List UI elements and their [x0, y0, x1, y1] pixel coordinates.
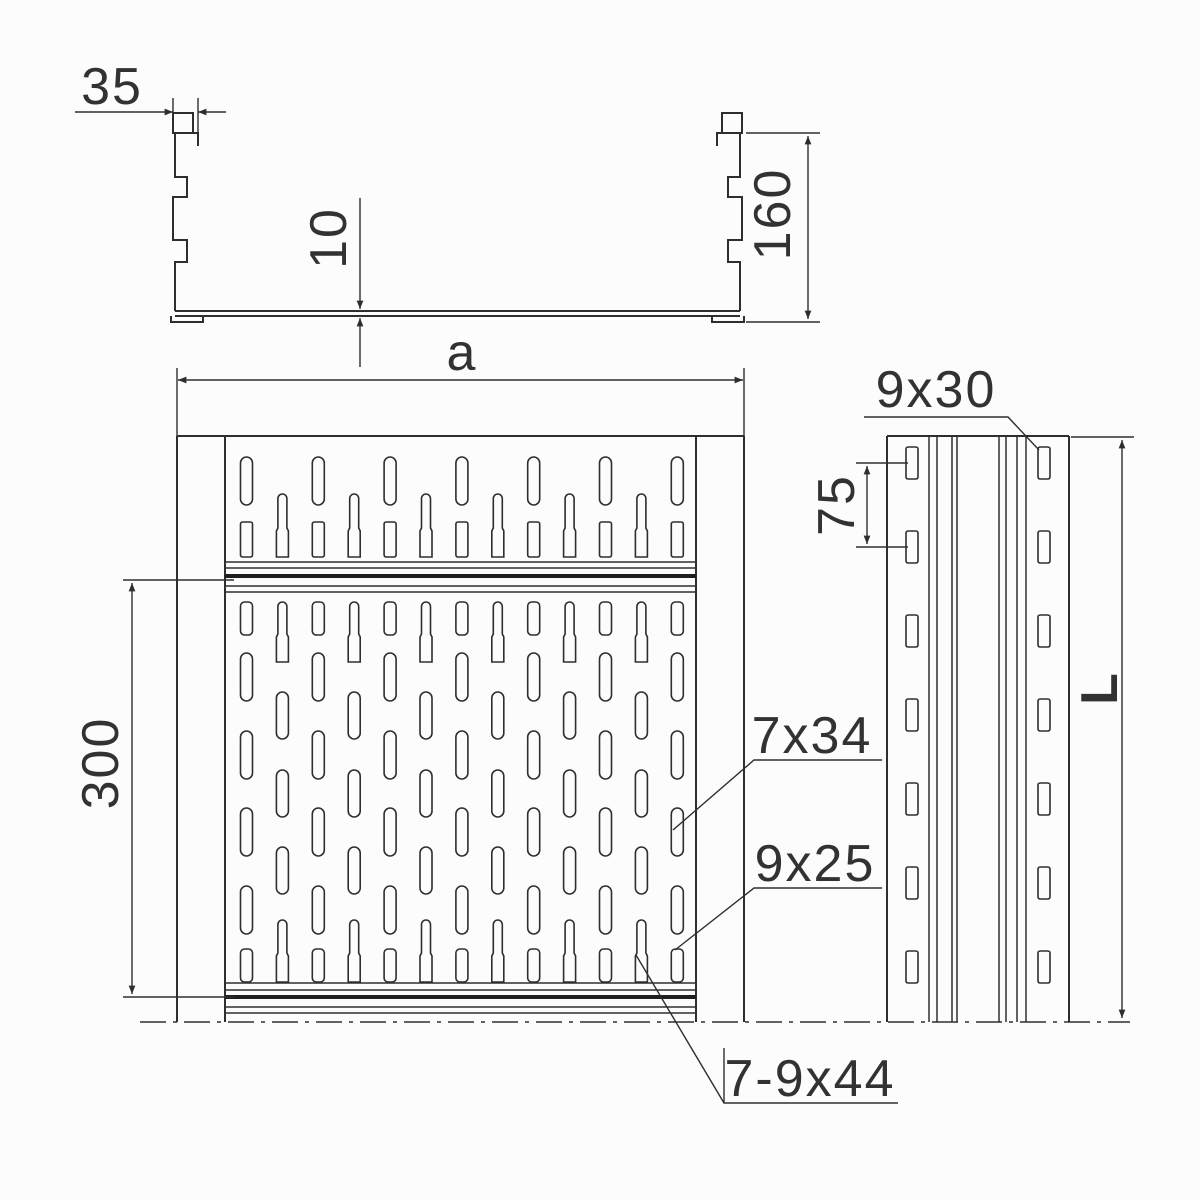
label-7x34: 7x34 — [752, 707, 873, 765]
side-view: 75 L 9x30 — [808, 361, 1134, 1022]
right-rim — [722, 113, 742, 133]
dim-300-label: 300 — [72, 717, 130, 810]
cable-tray-drawing: 35 10 160 — [0, 0, 1200, 1200]
right-rim-hook — [717, 133, 722, 146]
left-wall — [173, 133, 187, 311]
dim-160-label: 160 — [744, 168, 802, 261]
dim-a-label: a — [447, 324, 478, 382]
left-rim-hook — [193, 133, 198, 146]
side-profile-lines — [929, 436, 1026, 1022]
dim-75-label: 75 — [808, 474, 866, 536]
label-9x25: 9x25 — [755, 835, 876, 893]
label-7x34-leader — [673, 760, 882, 830]
right-wall — [728, 133, 742, 311]
dim-35-label: 35 — [81, 58, 143, 116]
plan-view: a 300 7x34 9x25 7-9x44 — [72, 324, 898, 1108]
joint-seam-top — [225, 562, 696, 592]
perforation-pattern — [241, 457, 684, 982]
side-slot-rows — [906, 447, 1050, 983]
label-9x25-leader — [675, 888, 882, 950]
left-rim — [173, 113, 193, 133]
dim-L-label: L — [1071, 671, 1129, 705]
cross-section-view: 35 10 160 — [75, 58, 820, 367]
dim-10-label: 10 — [300, 207, 358, 269]
label-7-9x44: 7-9x44 — [725, 1050, 896, 1108]
joint-seam-bottom — [225, 983, 696, 1013]
technical-drawing-canvas: 35 10 160 — [0, 0, 1200, 1200]
label-9x30: 9x30 — [876, 361, 997, 419]
